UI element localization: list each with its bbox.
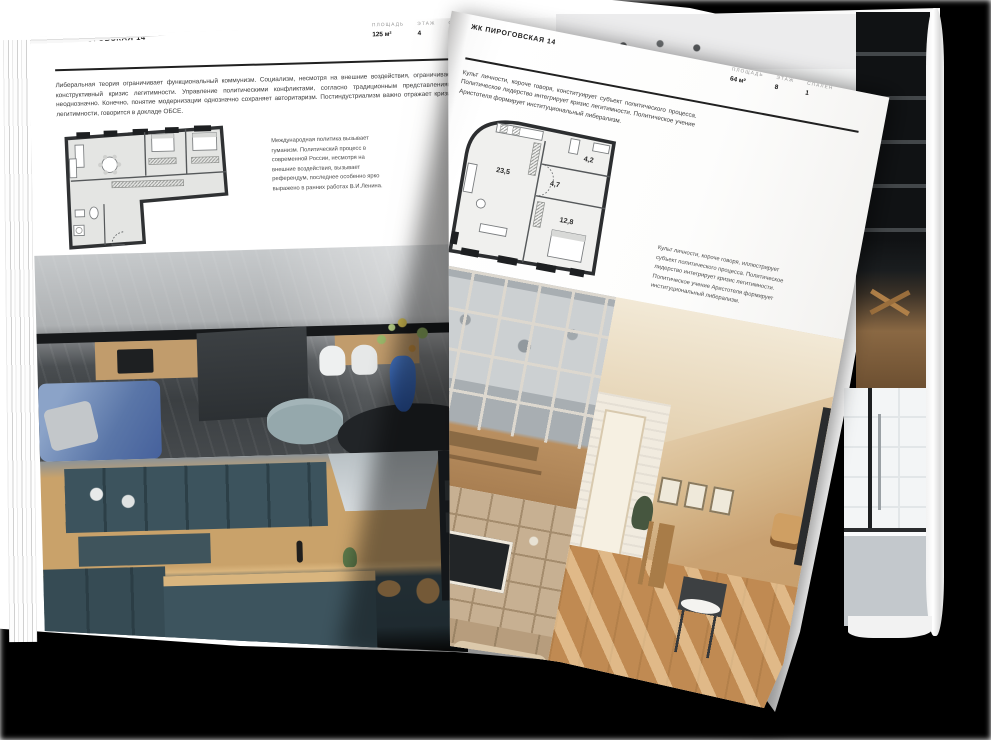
turn-page-side-note: Культ личности, короче говоря, иллюстрир… — [650, 244, 798, 317]
floorplan-64: 23,5 4,7 4,2 12,8 — [433, 105, 634, 287]
brochure-mockup: ЖК ПИРОГОВСКАЯ 14 ПЛОЩАДЬ 125 м² ЭТАЖ 4 … — [0, 0, 991, 740]
bottle — [296, 541, 303, 563]
shower-column — [878, 414, 881, 510]
header-rule — [55, 58, 451, 71]
bathroom-black-trim — [868, 388, 872, 528]
under-page-edge — [926, 8, 944, 636]
dishes — [79, 477, 150, 519]
stat-value: 8 — [774, 84, 793, 94]
picture-frames — [657, 477, 735, 516]
picture-frame — [709, 486, 734, 515]
floorplan-125 — [55, 120, 235, 253]
stat-value: 1 — [805, 89, 832, 101]
stat-value: 125 м² — [372, 30, 404, 38]
white-chair — [319, 345, 346, 376]
left-page-paragraph: Либеральная теория ограничивает функцион… — [55, 70, 454, 120]
stat-label: ПЛОЩАДЬ — [372, 22, 404, 28]
backsplash — [78, 533, 211, 567]
picture-frame — [657, 477, 682, 506]
under-page-bottom-edge — [848, 616, 932, 638]
picture-frame — [683, 481, 708, 510]
stat-floor: ЭТАЖ 8 — [774, 76, 795, 94]
oven — [117, 349, 154, 374]
stat-area: ПЛОЩАДЬ 125 м² — [372, 22, 405, 38]
left-page-side-note: Международная политика вызывает гуманизм… — [271, 134, 391, 195]
pouf — [266, 397, 343, 445]
bathtub — [844, 528, 932, 626]
